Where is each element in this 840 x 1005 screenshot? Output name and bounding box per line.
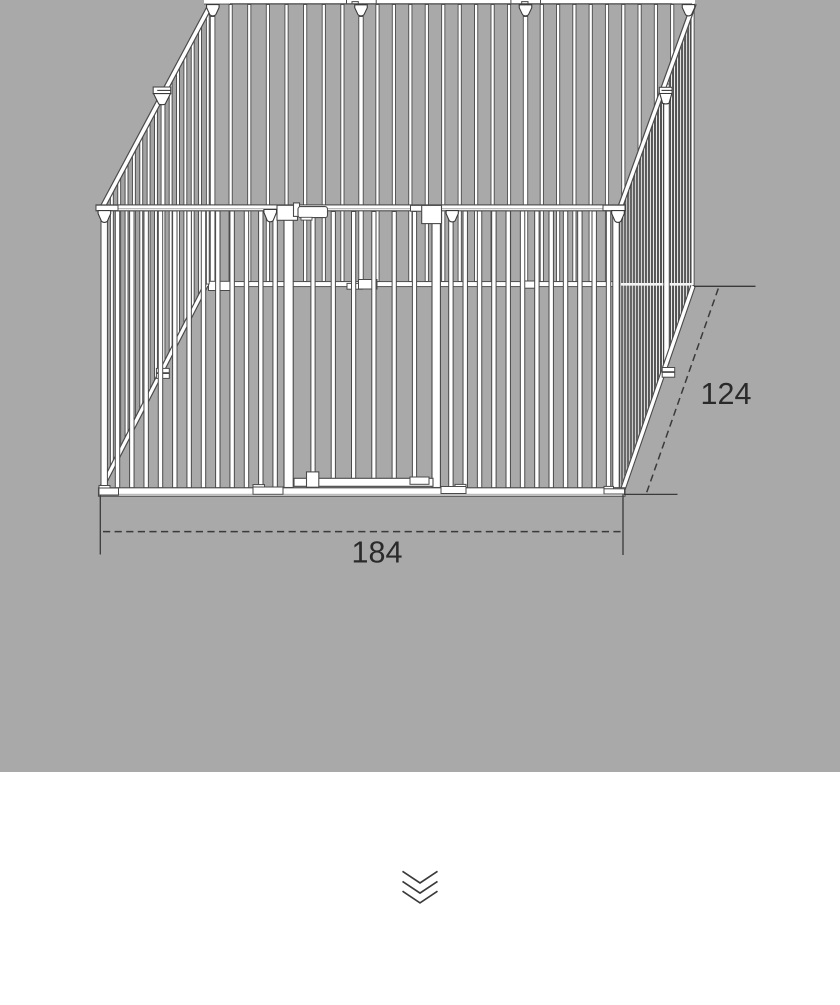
svg-text:184: 184 <box>352 536 403 570</box>
svg-text:124: 124 <box>701 377 752 411</box>
